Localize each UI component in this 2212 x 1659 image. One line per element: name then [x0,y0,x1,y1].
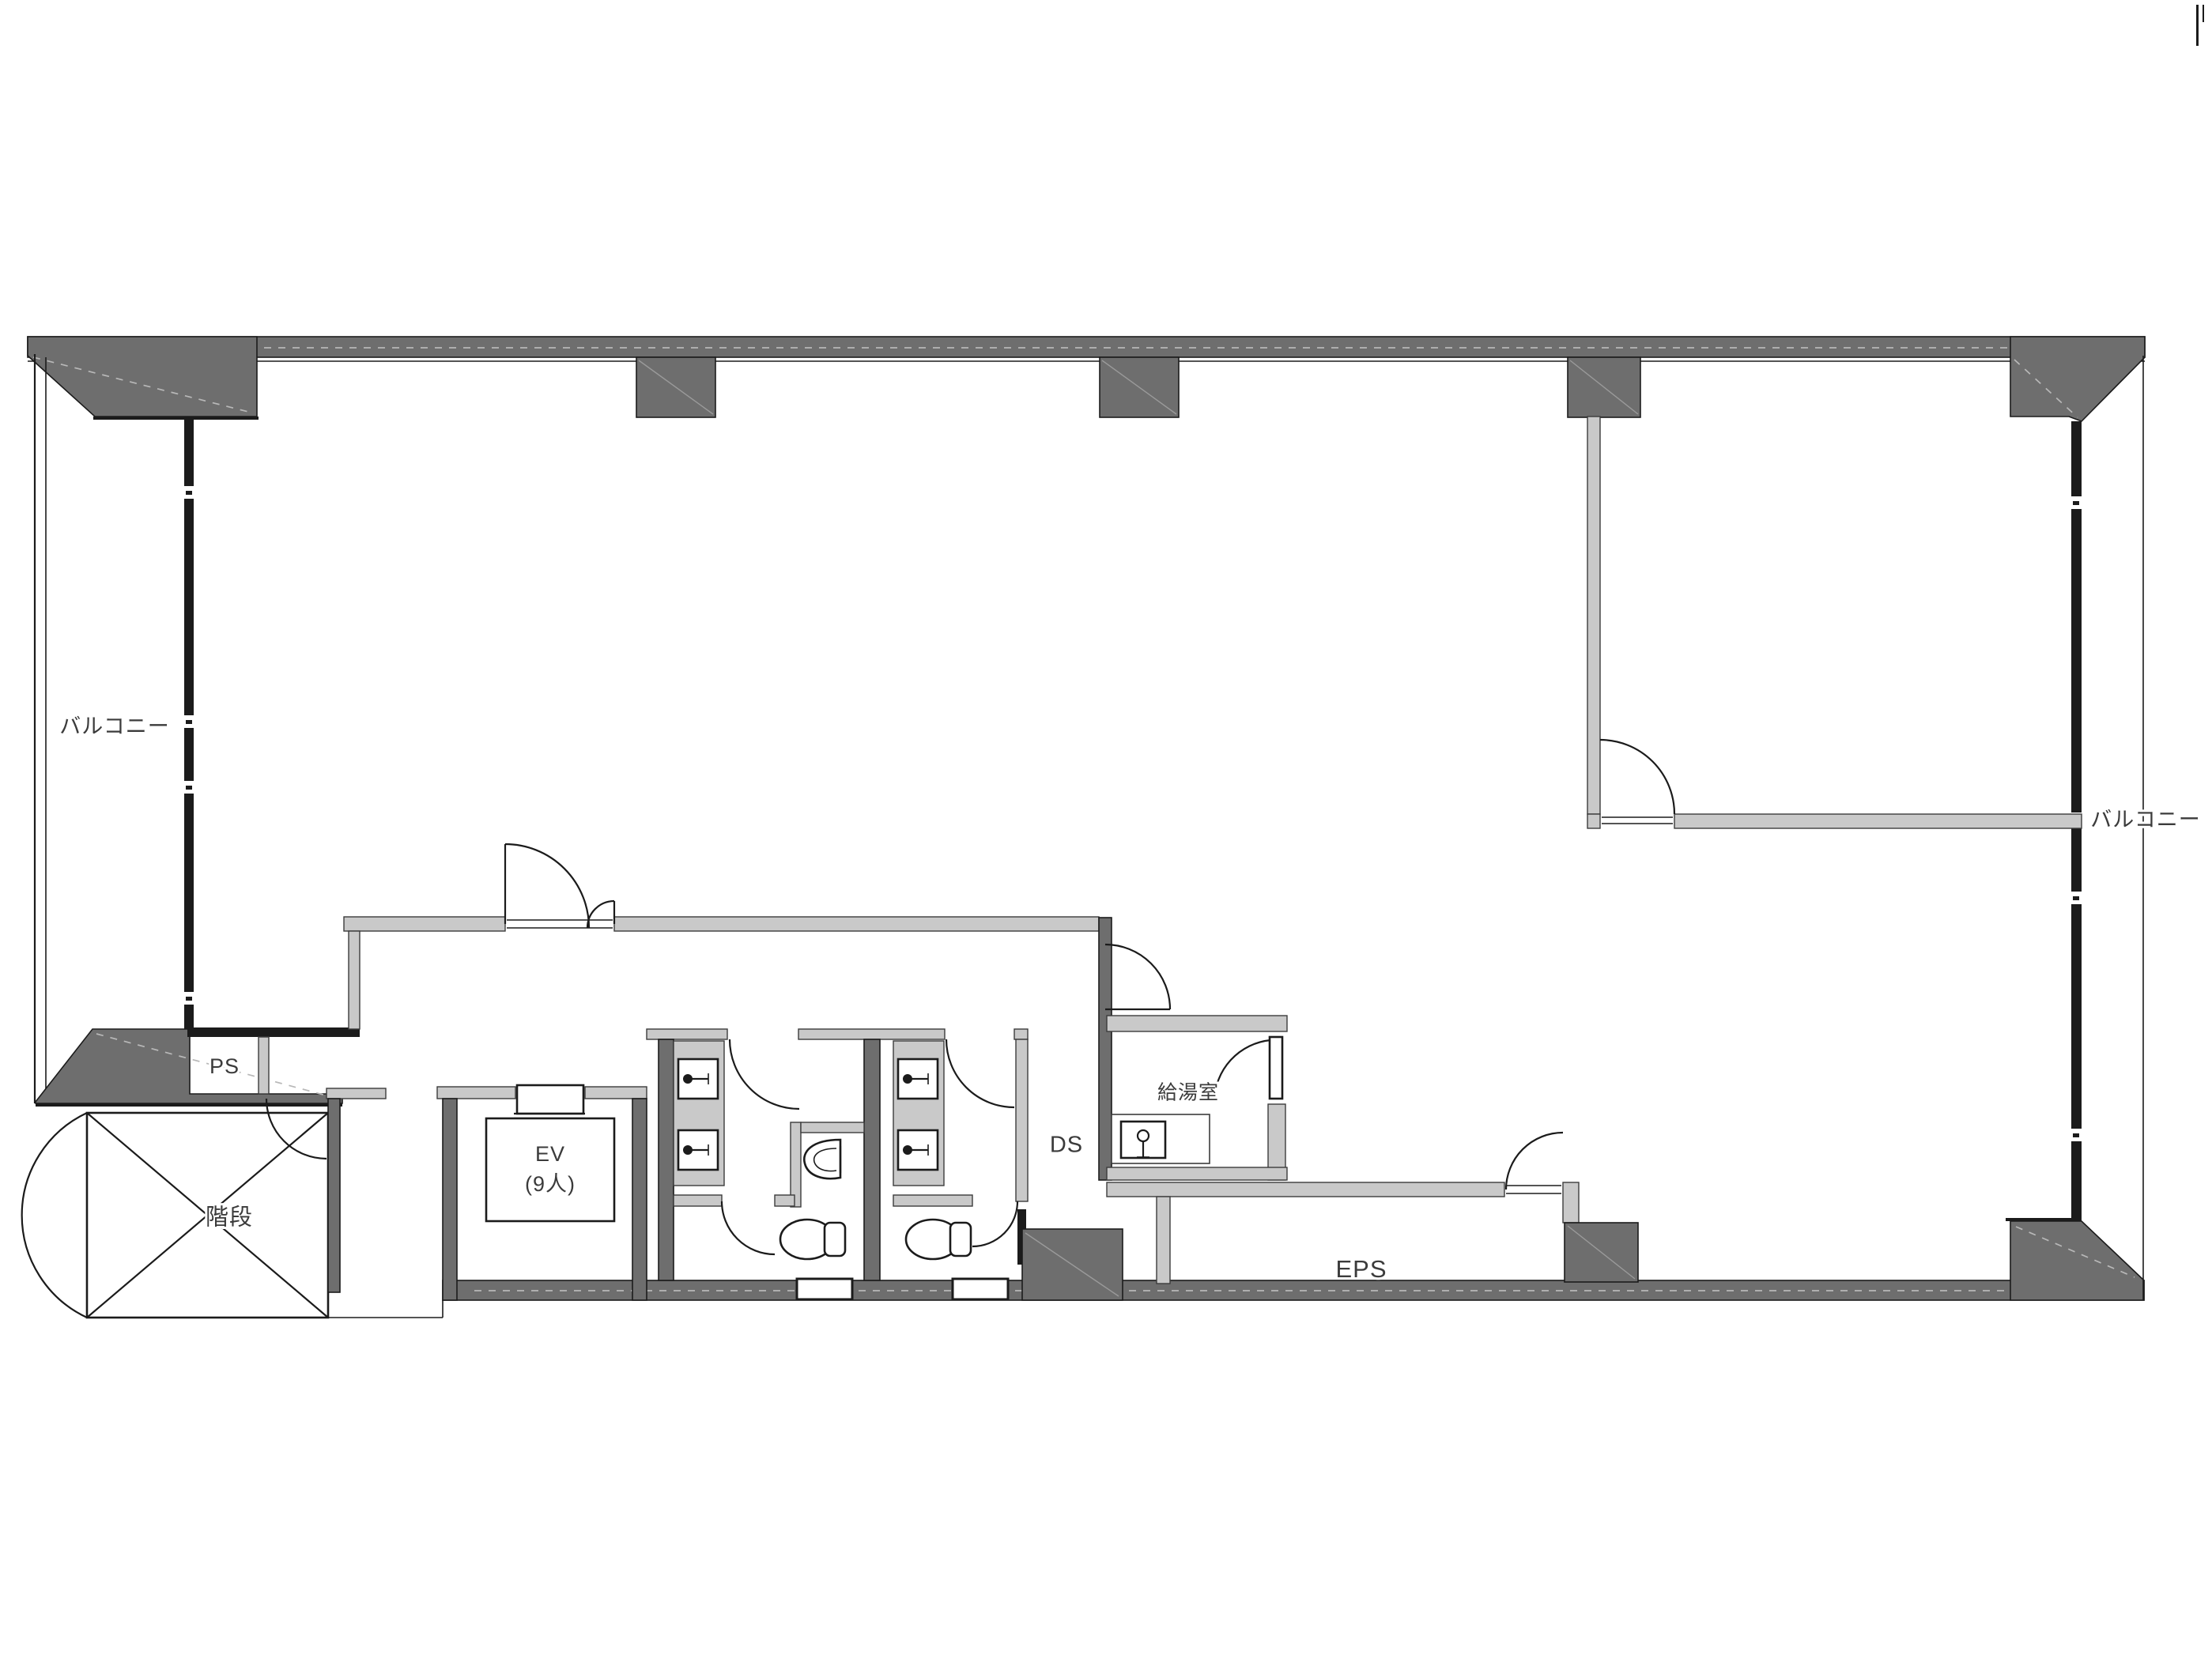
stall-wall [674,1195,722,1206]
corridor-partition [344,844,1170,1180]
toilet-symbol [780,1220,845,1259]
balcony-right-label: バルコニー [2090,808,2200,831]
ps-top-wall [187,1027,360,1037]
balcony-left-label: バルコニー [59,715,169,738]
wc-door-swing-left [730,1039,799,1109]
stall-door-swing [722,1201,775,1254]
sink-symbol [898,1130,938,1170]
wc-left-wall [659,1039,674,1280]
door-swing-small [587,901,614,928]
wc-top-wall-3 [1014,1029,1028,1039]
ds-right-wall [1099,918,1112,1180]
balcony-left-bottom-wall [36,1029,342,1103]
eps-left-wall [1157,1197,1170,1284]
wc-top-wall-2 [798,1029,945,1039]
ne-room-wall-stub [1587,814,1600,828]
kitchenette-door-swing [1214,1040,1270,1101]
ps-side-wall [259,1037,269,1094]
northeast-room [1587,417,2082,828]
core-left-wall [349,931,360,1029]
wc-top-wall-1 [647,1029,727,1039]
corner-top-right [2010,337,2145,421]
ev-door-pocket [517,1085,583,1114]
kitchenette-door-leaf [1270,1037,1282,1099]
main-double-door [505,844,614,928]
stair-sweep-arc [22,1113,87,1318]
stairs-label: 階段 [206,1205,253,1231]
urinal-symbol [804,1140,840,1178]
ne-room-south-wall [1674,814,2082,828]
door-swing-large [505,844,589,928]
ev-front-wall-left [437,1087,515,1099]
toilet-symbol [906,1220,971,1259]
ev-cab [486,1118,614,1221]
kitchenette-top-wall [1107,1016,1287,1031]
wc-door-swing-right [946,1039,1014,1107]
door-swing [1105,944,1170,1009]
stall-door-swing [972,1201,1017,1246]
stall-wall [893,1195,972,1206]
ev-shaft-wall-right [632,1099,647,1300]
top-exterior-wall [28,337,2145,357]
room-labels: バルコニー バルコニー PS 階段 EV (9人) DS 給湯室 EPS [59,715,2200,1283]
corridor-wall-right [614,917,1099,931]
sink-symbol [898,1059,938,1099]
restroom-block [647,1029,1028,1299]
corridor-east-door [1105,944,1170,1009]
ps-label: PS [209,1054,240,1078]
threshold-vent [797,1279,852,1299]
ne-room-west-wall [1587,417,1600,814]
eps-label: EPS [1335,1255,1387,1283]
kitchenette-label: 給湯室 [1157,1082,1219,1104]
ev-shaft-wall-left [443,1099,457,1300]
column-3 [1568,357,1640,417]
wc-middle-wall [864,1039,880,1280]
kitchenette-sink-symbol [1112,1114,1210,1163]
ds-label: DS [1050,1133,1083,1158]
sink-symbol [678,1130,718,1170]
ne-door-swing [1600,740,1674,814]
eps-door-swing [1506,1133,1563,1190]
wc-right-wall [1016,1039,1028,1201]
stall-wall [775,1195,795,1206]
threshold-vent [953,1279,1008,1299]
floor-plan-drawing: バルコニー バルコニー PS 階段 EV (9人) DS 給湯室 EPS [0,0,2212,1659]
urinal-niche-wall-v [791,1122,801,1207]
sink-symbol [678,1059,718,1099]
floor-plan-canvas: バルコニー バルコニー PS 階段 EV (9人) DS 給湯室 EPS [0,0,2212,1659]
stair-ev-separator-wall [328,1099,340,1292]
eps-right-wall [1563,1182,1579,1223]
kitchenette-bottom-wall [1107,1167,1287,1180]
corridor-wall-left [344,917,505,931]
elevator-label-line1: EV [535,1142,565,1166]
entry-lintel-wall [327,1088,386,1099]
screen-artifact-mark [2196,5,2204,46]
corner-top-left [28,337,257,417]
ev-front-wall-right [585,1087,647,1099]
column-1 [636,357,715,417]
urinal-niche-wall-h [801,1122,864,1133]
elevator-label-line2: (9人) [525,1172,576,1196]
eps-top-wall [1107,1182,1504,1197]
column-2 [1100,357,1179,417]
